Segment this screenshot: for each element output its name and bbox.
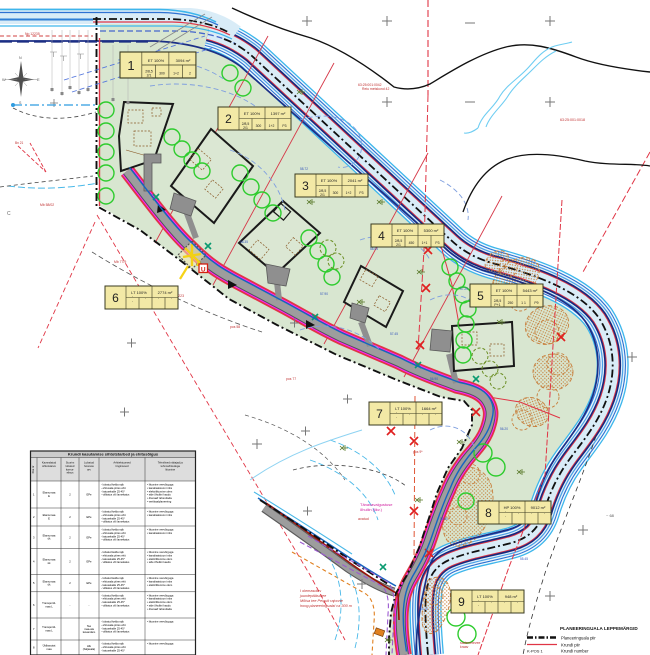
svg-text:liitumine: liitumine — [165, 467, 175, 471]
svg-text:pos 58: pos 58 — [230, 325, 240, 329]
svg-text:- viilkatus või lamekatus: - viilkatus või lamekatus — [101, 586, 130, 590]
svg-text:ET 100%: ET 100% — [148, 58, 165, 63]
svg-text:lubatud: lubatud — [66, 464, 75, 468]
svg-text:58.05: 58.05 — [370, 247, 378, 251]
svg-text:• side õhuliini kaudu: • side õhuliini kaudu — [147, 604, 171, 608]
svg-text:EPe: EPe — [86, 493, 92, 497]
svg-text:57.90: 57.90 — [320, 292, 328, 296]
svg-text:-: - — [435, 412, 436, 416]
svg-text:EPe: EPe — [86, 581, 92, 585]
svg-text:- ehitusala piires ehit: - ehitusala piires ehit — [101, 645, 126, 649]
svg-text:PLANEERINGUALA LEPPEMÄRGID: PLANEERINGUALA LEPPEMÄRGID — [560, 625, 638, 631]
svg-text:• side õhuliini kaudu: • side õhuliini kaudu — [147, 493, 171, 497]
svg-text:K-POS 1: K-POS 1 — [527, 649, 544, 654]
svg-text:1+2: 1+2 — [346, 191, 352, 195]
svg-text:pos 77: pos 77 — [286, 377, 296, 381]
svg-text:U: U — [201, 266, 206, 273]
svg-text:1+2: 1+2 — [173, 72, 179, 76]
svg-text:õhuliin (likv.): õhuliin (likv.) — [360, 507, 383, 512]
svg-text:-: - — [517, 600, 518, 604]
svg-text:56.90: 56.90 — [430, 377, 438, 381]
svg-text:- lubatud kelda rajk: - lubatud kelda rajk — [101, 593, 124, 597]
svg-text:9012 m²: 9012 m² — [531, 505, 546, 510]
svg-text:2/1: 2/1 — [147, 74, 152, 78]
svg-text:• liitumine veevõrguga: • liitumine veevõrguga — [147, 593, 174, 597]
svg-text:• side õhuliini kaudu: • side õhuliini kaudu — [147, 560, 171, 564]
svg-text:• drenaaž lahendada: • drenaaž lahendada — [147, 607, 172, 611]
svg-text:LT 100%: LT 100% — [477, 594, 493, 599]
svg-text:5300 m²: 5300 m² — [424, 228, 439, 233]
svg-text:pos 9*: pos 9* — [413, 450, 423, 454]
svg-text:- viilkatus või lamekatus: - viilkatus või lamekatus — [101, 604, 130, 608]
svg-text:5443 m²: 5443 m² — [523, 288, 538, 293]
svg-text:Mb 58/02: Mb 58/02 — [40, 203, 54, 207]
svg-text:• liitumine veevõrguga: • liitumine veevõrguga — [147, 576, 174, 580]
svg-text:P3: P3 — [435, 241, 439, 245]
svg-text:I olemasolev: I olemasolev — [300, 589, 321, 593]
svg-text:- viilkatus või lamekatus: - viilkatus või lamekatus — [101, 538, 130, 542]
svg-text:57.45: 57.45 — [390, 332, 398, 336]
svg-text:Bn 21: Bn 21 — [15, 141, 24, 145]
svg-text:Np 12235: Np 12235 — [25, 32, 40, 36]
svg-text:58.35: 58.35 — [240, 240, 248, 244]
svg-text:-: - — [171, 296, 172, 300]
svg-text:2041 m²: 2041 m² — [348, 178, 363, 183]
svg-text:9: 9 — [458, 595, 465, 609]
svg-text:P+1: P+1 — [494, 303, 500, 307]
svg-text:300: 300 — [256, 124, 262, 128]
svg-text:- ehitusala piires ehit: - ehitusala piires ehit — [101, 623, 126, 627]
svg-text:C: C — [7, 211, 11, 217]
svg-text:arv: arv — [87, 467, 91, 471]
svg-text:• liitumine veevõrguga: • liitumine veevõrguga — [147, 510, 174, 514]
svg-text:Krundi number: Krundi number — [561, 649, 589, 654]
svg-text:- ehitusala piires ehit: - ehitusala piires ehit — [101, 513, 126, 517]
svg-text:• drenaaž lahendada: • drenaaž lahendada — [147, 496, 172, 500]
svg-text:Suurim: Suurim — [66, 461, 75, 465]
svg-text:• liitumine veevõrguga: • liitumine veevõrguga — [147, 483, 174, 487]
svg-text:Lubatud: Lubatud — [84, 461, 94, 465]
svg-text:• kanalisatsioon imbs: • kanalisatsioon imbs — [147, 513, 173, 517]
svg-text:-: - — [478, 599, 479, 603]
svg-text:-: - — [396, 415, 397, 419]
svg-text:• kanalisatsioon imbs: • kanalisatsioon imbs — [147, 553, 173, 557]
svg-text:2: 2 — [225, 112, 232, 126]
svg-text:EPe: EPe — [86, 515, 92, 519]
svg-text:maa: maa — [46, 648, 52, 651]
svg-text:5: 5 — [477, 289, 484, 303]
svg-text:P3: P3 — [359, 191, 363, 195]
svg-text:elisus: elisus — [67, 471, 75, 475]
svg-text:2: 2 — [189, 72, 191, 76]
svg-text:Krundi piir: Krundi piir — [561, 643, 580, 648]
svg-text:948 m²: 948 m² — [505, 594, 518, 599]
svg-text:450: 450 — [409, 241, 415, 245]
svg-text:• liitumine veevõrguga: • liitumine veevõrguga — [147, 620, 174, 624]
svg-text:- katusekalle 25-45°: - katusekalle 25-45° — [101, 600, 125, 604]
svg-text:57.25: 57.25 — [460, 287, 468, 291]
svg-text:Tehnilised näitajad ja: Tehnilised näitajad ja — [158, 461, 183, 465]
svg-text:- katusekalle 25-45°: - katusekalle 25-45° — [101, 516, 125, 520]
svg-text:• kanalisatsioon imbs: • kanalisatsioon imbs — [147, 597, 173, 601]
svg-text:N: N — [19, 56, 22, 60]
svg-text:- katusekalle 25-45°: - katusekalle 25-45° — [101, 557, 125, 561]
svg-text:55.10: 55.10 — [420, 607, 428, 611]
svg-text:- katusekalle 25-45°: - katusekalle 25-45° — [101, 626, 125, 630]
svg-text:- lubatud kelda rajk: - lubatud kelda rajk — [101, 642, 124, 646]
svg-text:tehnovõrkudega: tehnovõrkudega — [161, 464, 181, 468]
svg-text:- lubatud kelda rajk: - lubatud kelda rajk — [101, 510, 124, 514]
svg-text:-: - — [145, 296, 146, 300]
svg-text:250: 250 — [508, 301, 514, 305]
svg-text:-: - — [518, 511, 519, 515]
svg-text:korrus-: korrus- — [66, 467, 74, 471]
svg-text:W: W — [2, 77, 6, 82]
svg-text:sihtotstarve: sihtotstarve — [42, 464, 56, 468]
svg-text:1 1: 1 1 — [521, 301, 526, 305]
svg-text:300: 300 — [159, 72, 165, 76]
svg-text:- viilkatus või lamekatus: - viilkatus või lamekatus — [101, 493, 130, 497]
svg-text:2774 m²: 2774 m² — [158, 290, 173, 295]
svg-text:- ehitusala piires ehit: - ehitusala piires ehit — [101, 531, 126, 535]
svg-text:58.72: 58.72 — [300, 167, 308, 171]
svg-text:- lubatud kelda rajk: - lubatud kelda rajk — [101, 620, 124, 624]
svg-text:- viilkatus või lamekatus: - viilkatus või lamekatus — [101, 630, 130, 634]
svg-text:Mb 77/9: Mb 77/9 — [114, 260, 126, 264]
svg-text:-: - — [505, 510, 506, 514]
svg-text:4: 4 — [378, 229, 385, 243]
svg-text:- ehitusala piires ehit: - ehitusala piires ehit — [101, 486, 126, 490]
svg-text:~ 68: ~ 68 — [606, 513, 615, 518]
svg-text:- ehitusala piires ehit: - ehitusala piires ehit — [101, 553, 126, 557]
svg-text:ET 100%: ET 100% — [397, 228, 414, 233]
svg-text:7: 7 — [376, 407, 383, 421]
svg-text:• liitumine veevõrguga: • liitumine veevõrguga — [147, 642, 174, 646]
svg-text:- ehitusala piires ehit: - ehitusala piires ehit — [101, 597, 126, 601]
svg-text:- lubatud kelda rajk: - lubatud kelda rajk — [101, 528, 124, 532]
svg-text:63:25:001:0018: 63:25:001:0018 — [560, 118, 585, 122]
svg-text:hoonete: hoonete — [84, 464, 94, 468]
svg-text:P3: P3 — [282, 124, 286, 128]
svg-text:• kanalisatsioon imbs: • kanalisatsioon imbs — [147, 486, 173, 490]
svg-text:3094 m²: 3094 m² — [176, 58, 191, 63]
svg-text:55.45: 55.45 — [520, 557, 528, 561]
svg-text:• elektriliitumine olem: • elektriliitumine olem — [147, 489, 173, 493]
svg-text:- lubatud kelda rajk: - lubatud kelda rajk — [101, 576, 124, 580]
svg-text:Kavandatud: Kavandatud — [42, 461, 57, 465]
svg-text:• kanalisatsioon imbs: • kanalisatsioon imbs — [147, 579, 173, 583]
svg-text:tingimused: tingimused — [116, 464, 130, 468]
svg-text:• elektriliitumine olem: • elektriliitumine olem — [147, 600, 173, 604]
svg-text:EPe: EPe — [86, 535, 92, 539]
svg-text:LT 100%: LT 100% — [131, 290, 147, 295]
svg-text:-: - — [132, 295, 133, 299]
svg-text:- ehitusala piires ehit: - ehitusala piires ehit — [101, 579, 126, 583]
svg-text:1+2: 1+2 — [269, 124, 275, 128]
svg-text:• liitumine veevõrguga: • liitumine veevõrguga — [147, 528, 174, 532]
svg-text:• kanalisatsioon imbs: • kanalisatsioon imbs — [147, 531, 173, 535]
svg-text:-: - — [531, 511, 532, 515]
svg-text:-: - — [396, 411, 397, 415]
svg-text:E: E — [37, 77, 40, 82]
svg-text:- katusekalle 25-45°: - katusekalle 25-45° — [101, 489, 125, 493]
svg-text:1664 m²: 1664 m² — [422, 406, 437, 411]
svg-text:LT 100%: LT 100% — [395, 406, 411, 411]
svg-text:-: - — [70, 604, 71, 607]
svg-text:2/1: 2/1 — [320, 193, 325, 197]
svg-text:• liitumine veevõrguga: • liitumine veevõrguga — [147, 550, 174, 554]
svg-text:1+1: 1+1 — [422, 241, 428, 245]
svg-text:Reiu metskond 42: Reiu metskond 42 — [362, 87, 389, 91]
svg-text:-: - — [505, 514, 506, 518]
svg-text:- lubatud kelda rajk: - lubatud kelda rajk — [101, 550, 124, 554]
svg-text:6: 6 — [112, 291, 119, 305]
svg-text:55.80: 55.80 — [440, 517, 448, 521]
svg-text:E: E — [48, 516, 50, 520]
svg-text:ET 100%: ET 100% — [244, 111, 261, 116]
svg-text:juurdepääsutee: juurdepääsutee — [299, 594, 326, 598]
svg-text:-: - — [504, 600, 505, 604]
svg-text:ET 100%: ET 100% — [496, 288, 513, 293]
svg-text:(haljasala): (haljasala) — [83, 647, 96, 651]
svg-text:kraav: kraav — [460, 645, 469, 649]
svg-text:maa L: maa L — [45, 604, 53, 608]
svg-text:8: 8 — [485, 506, 492, 520]
svg-text:56.20: 56.20 — [500, 427, 508, 431]
svg-text:300: 300 — [333, 191, 339, 195]
svg-text:kavandam: kavandam — [83, 630, 96, 634]
svg-text:avatud: avatud — [358, 517, 369, 521]
svg-text:2/1: 2/1 — [243, 126, 248, 130]
svg-text:• vertikaalplaneering: • vertikaalplaneering — [147, 500, 172, 504]
svg-text:-: - — [478, 603, 479, 607]
svg-text:-: - — [89, 604, 90, 607]
svg-text:-: - — [158, 296, 159, 300]
svg-text:EPe: EPe — [86, 560, 92, 564]
svg-text:maa L: maa L — [45, 628, 53, 632]
svg-text:Arhitektuursed: Arhitektuursed — [113, 461, 131, 465]
svg-text:hoog.planeeringualal ca 300 m: hoog.planeeringualal ca 300 m — [300, 604, 352, 608]
svg-text:2/1: 2/1 — [396, 243, 401, 247]
svg-text:- katusekalle 25-45°: - katusekalle 25-45° — [101, 583, 125, 587]
svg-text:ET 100%: ET 100% — [321, 178, 338, 183]
svg-text:1397 m²: 1397 m² — [271, 111, 286, 116]
svg-text:Krundi kasutamise sihtotstarbe: Krundi kasutamise sihtotstarbed ja ehitu… — [68, 452, 159, 457]
svg-text:-: - — [544, 511, 545, 515]
svg-text:E: E — [48, 494, 50, 498]
svg-text:1: 1 — [127, 58, 134, 73]
svg-text:-: - — [409, 412, 410, 416]
svg-text:- viilkatus või lamekatus: - viilkatus või lamekatus — [101, 520, 130, 524]
svg-text:P9: P9 — [534, 301, 538, 305]
svg-text:-: - — [422, 412, 423, 416]
svg-text:Planeeringuala piir: Planeeringuala piir — [561, 636, 596, 641]
svg-text:-: - — [491, 600, 492, 604]
svg-text:-: - — [132, 299, 133, 303]
svg-text:Pos nr: Pos nr — [31, 466, 35, 474]
svg-text:- katusekalle 25-45°: - katusekalle 25-45° — [101, 648, 125, 652]
svg-text:Mõisa tee Peigult rajoone: Mõisa tee Peigult rajoone — [300, 599, 343, 603]
svg-text:3: 3 — [302, 179, 309, 193]
svg-text:HP 100%: HP 100% — [504, 505, 521, 510]
svg-text:• elektriliitumine olem: • elektriliitumine olem — [147, 583, 173, 587]
svg-text:• elektriliitumine olem: • elektriliitumine olem — [147, 557, 173, 561]
svg-text:- viilkatus või lamekatus: - viilkatus või lamekatus — [101, 560, 130, 564]
svg-text:- katusekalle 25-45°: - katusekalle 25-45° — [101, 534, 125, 538]
svg-text:- lubatud kelda rajk: - lubatud kelda rajk — [101, 483, 124, 487]
